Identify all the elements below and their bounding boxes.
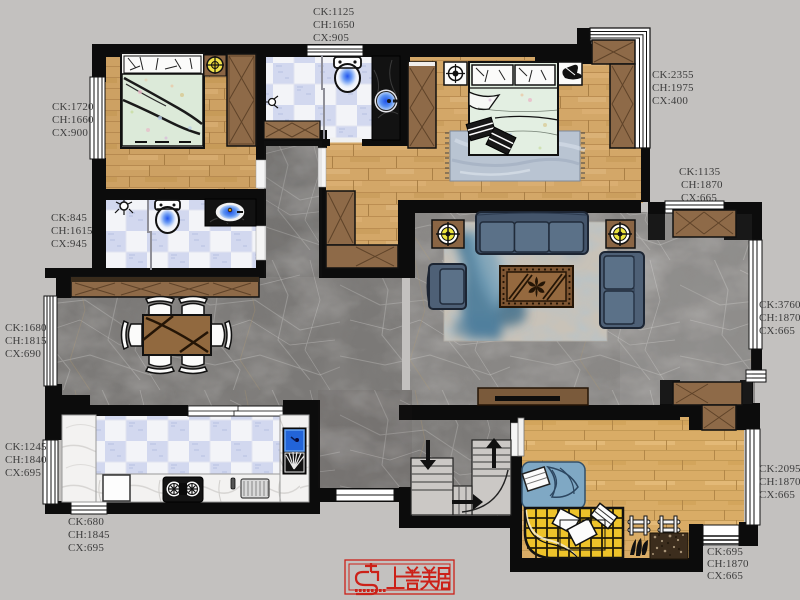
svg-text:CH:1870: CH:1870 <box>759 312 800 324</box>
svg-text:CK:3760: CK:3760 <box>759 299 800 311</box>
svg-text:CK:2355: CK:2355 <box>652 69 694 81</box>
svg-text:CX:900: CX:900 <box>52 127 88 139</box>
svg-text:CX:945: CX:945 <box>51 238 87 250</box>
svg-text:CH:1845: CH:1845 <box>68 529 110 541</box>
svg-text:CX:695: CX:695 <box>5 467 41 479</box>
svg-text:CH:1650: CH:1650 <box>313 19 355 31</box>
svg-text:CH:1815: CH:1815 <box>5 335 47 347</box>
svg-text:CH:1870: CH:1870 <box>707 558 749 570</box>
svg-text:CH:1615: CH:1615 <box>51 225 93 237</box>
svg-text:CX:400: CX:400 <box>652 95 688 107</box>
svg-text:CK:695: CK:695 <box>707 546 743 558</box>
svg-text:CK:680: CK:680 <box>68 516 104 528</box>
svg-text:CK:2095: CK:2095 <box>759 463 800 475</box>
svg-text:CK:845: CK:845 <box>51 212 87 224</box>
svg-text:CK:1125: CK:1125 <box>313 6 355 18</box>
svg-text:CH:1660: CH:1660 <box>52 114 94 126</box>
svg-text:CX:905: CX:905 <box>313 32 349 44</box>
svg-text:CX:665: CX:665 <box>681 192 717 204</box>
svg-text:CK:1720: CK:1720 <box>52 101 94 113</box>
svg-text:CK:1245: CK:1245 <box>5 441 47 453</box>
svg-text:CK:1680: CK:1680 <box>5 322 47 334</box>
svg-text:CH:1840: CH:1840 <box>5 454 47 466</box>
svg-text:CX:690: CX:690 <box>5 348 41 360</box>
svg-text:CH:1975: CH:1975 <box>652 82 694 94</box>
svg-text:CX:665: CX:665 <box>759 489 795 501</box>
svg-text:CH:1870: CH:1870 <box>681 179 723 191</box>
svg-text:CX:665: CX:665 <box>759 325 795 337</box>
svg-text:CX:695: CX:695 <box>68 542 104 554</box>
svg-text:CX:665: CX:665 <box>707 570 743 582</box>
svg-text:CH:1870: CH:1870 <box>759 476 800 488</box>
svg-text:CK:1135: CK:1135 <box>679 166 721 178</box>
